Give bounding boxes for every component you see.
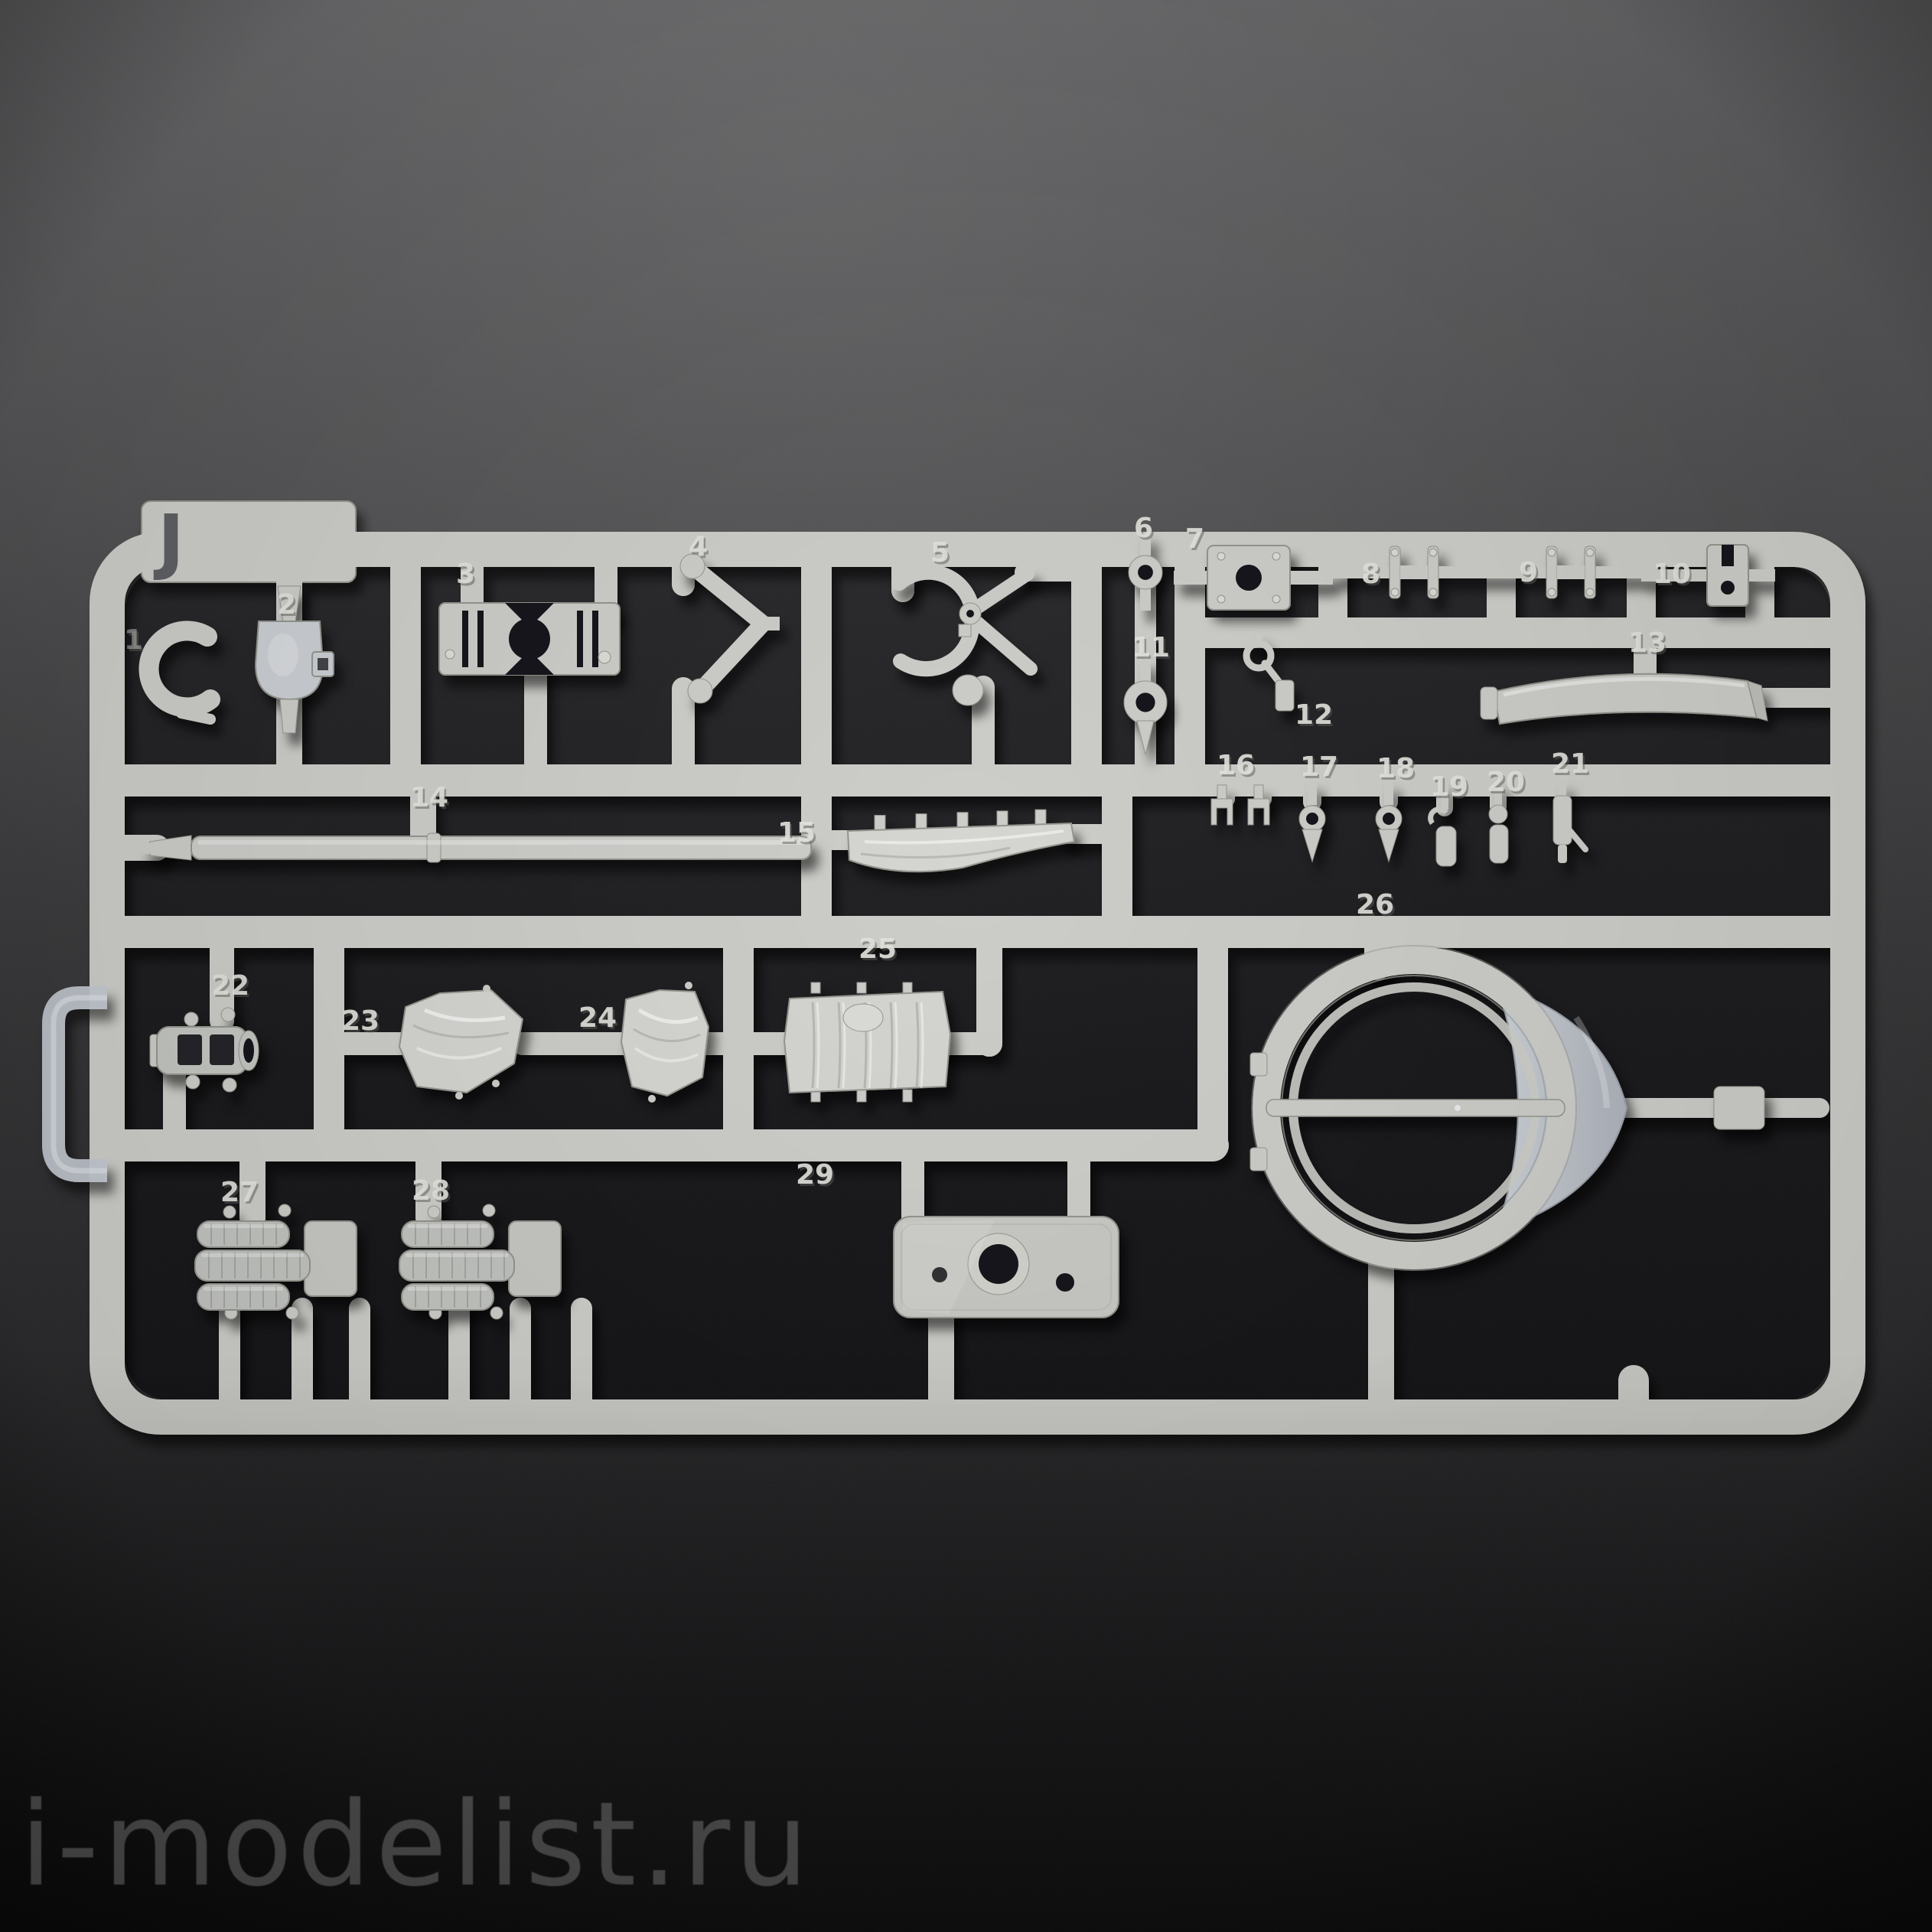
sprue-letter-label: J [158, 502, 249, 582]
sprue-scene: 1122334455667788991010111112121313141415… [0, 0, 1932, 1932]
watermark: i-modelist.ru [20, 1777, 813, 1912]
vignette-bottom [0, 0, 1932, 1932]
photo-of-sprue: 1122334455667788991010111112121313141415… [0, 0, 1932, 1932]
